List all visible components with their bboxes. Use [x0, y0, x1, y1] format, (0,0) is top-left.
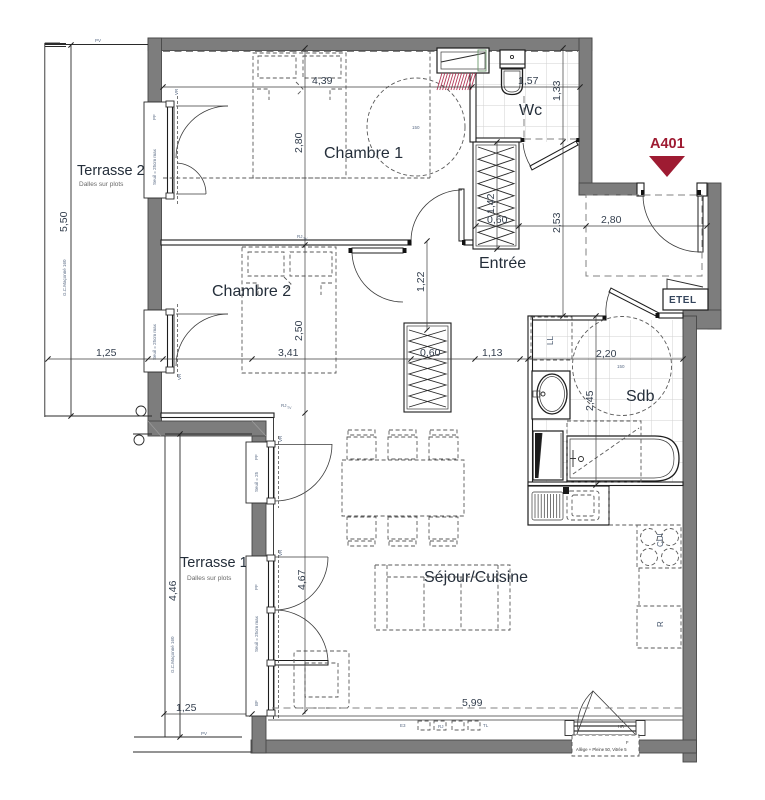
svg-text:0,60: 0,60 — [420, 347, 441, 359]
svg-text:PV: PV — [95, 38, 101, 43]
svg-text:1,25: 1,25 — [176, 702, 197, 714]
svg-text:4,67: 4,67 — [296, 569, 308, 590]
svg-text:Seuil = 25: Seuil = 25 — [254, 471, 259, 492]
svg-text:5,99: 5,99 — [462, 697, 483, 709]
svg-text:1,13: 1,13 — [482, 347, 503, 359]
svg-text:Allège + Pleine 50, Vitrée 5: Allège + Pleine 50, Vitrée 5 — [576, 747, 627, 752]
svg-text:Wc: Wc — [519, 102, 542, 119]
svg-text:R: R — [656, 621, 665, 627]
svg-text:G.C.Maçonné 160: G.C.Maçonné 160 — [62, 259, 67, 296]
svg-text:BF: BF — [254, 700, 259, 706]
svg-text:Entrée: Entrée — [479, 255, 526, 272]
svg-text:PF: PF — [152, 114, 157, 120]
svg-text:RJ: RJ — [438, 724, 444, 729]
svg-text:Seuil = 25cm max: Seuil = 25cm max — [152, 323, 157, 360]
svg-text:F: F — [626, 740, 629, 745]
svg-text:Sdb: Sdb — [626, 388, 655, 405]
svg-text:Dalles sur plots: Dalles sur plots — [79, 181, 124, 188]
svg-text:E3: E3 — [400, 723, 406, 728]
svg-text:HR: HR — [618, 724, 624, 729]
svg-text:Dalles sur plots: Dalles sur plots — [187, 575, 232, 582]
svg-text:3,41: 3,41 — [278, 347, 299, 359]
svg-text:1,33: 1,33 — [551, 80, 563, 101]
svg-text:1,25: 1,25 — [96, 347, 117, 359]
svg-text:ETEL: ETEL — [669, 295, 697, 306]
svg-text:2,45: 2,45 — [584, 390, 596, 411]
svg-text:PF: PF — [254, 454, 259, 460]
svg-text:RJ: RJ — [281, 403, 287, 408]
svg-text:2,80: 2,80 — [293, 132, 305, 153]
svg-text:Terrasse 2: Terrasse 2 — [77, 163, 145, 179]
svg-text:G.C.Maçonné 160: G.C.Maçonné 160 — [170, 636, 175, 673]
svg-text:2,80: 2,80 — [601, 214, 622, 226]
svg-text:2,20: 2,20 — [596, 348, 617, 360]
svg-text:2,53: 2,53 — [551, 212, 563, 233]
svg-text:CUI: CUI — [656, 533, 665, 547]
svg-text:VR: VR — [278, 435, 283, 442]
svg-text:4,39: 4,39 — [312, 75, 333, 87]
svg-text:Chambre 2: Chambre 2 — [212, 283, 291, 300]
svg-text:Seuil = 25cm max: Seuil = 25cm max — [152, 148, 157, 185]
svg-text:PV: PV — [201, 731, 207, 736]
svg-text:VR: VR — [177, 373, 182, 380]
svg-text:1,42: 1,42 — [485, 193, 497, 214]
svg-text:A401: A401 — [650, 136, 685, 152]
svg-text:VR: VR — [278, 549, 283, 556]
svg-text:VR: VR — [174, 88, 179, 95]
svg-text:TL: TL — [483, 723, 489, 728]
svg-text:Séjour/Cuisine: Séjour/Cuisine — [424, 569, 528, 586]
svg-text:4,46: 4,46 — [167, 580, 179, 601]
svg-text:TV: TV — [287, 406, 292, 410]
svg-text:Chambre 1: Chambre 1 — [324, 145, 403, 162]
svg-text:RJ: RJ — [297, 234, 303, 239]
svg-text:1,57: 1,57 — [518, 75, 539, 87]
svg-text:5,50: 5,50 — [58, 211, 70, 232]
svg-text:TV: TV — [303, 237, 308, 241]
svg-text:LL: LL — [546, 336, 555, 345]
svg-text:Terrasse 1: Terrasse 1 — [180, 555, 248, 571]
svg-text:2,50: 2,50 — [293, 320, 305, 341]
svg-text:Seuil = 25cm max: Seuil = 25cm max — [254, 615, 259, 652]
svg-text:150: 150 — [617, 364, 625, 369]
svg-text:150: 150 — [412, 125, 420, 130]
svg-text:PF: PF — [254, 584, 259, 590]
svg-text:1,22: 1,22 — [415, 271, 427, 292]
